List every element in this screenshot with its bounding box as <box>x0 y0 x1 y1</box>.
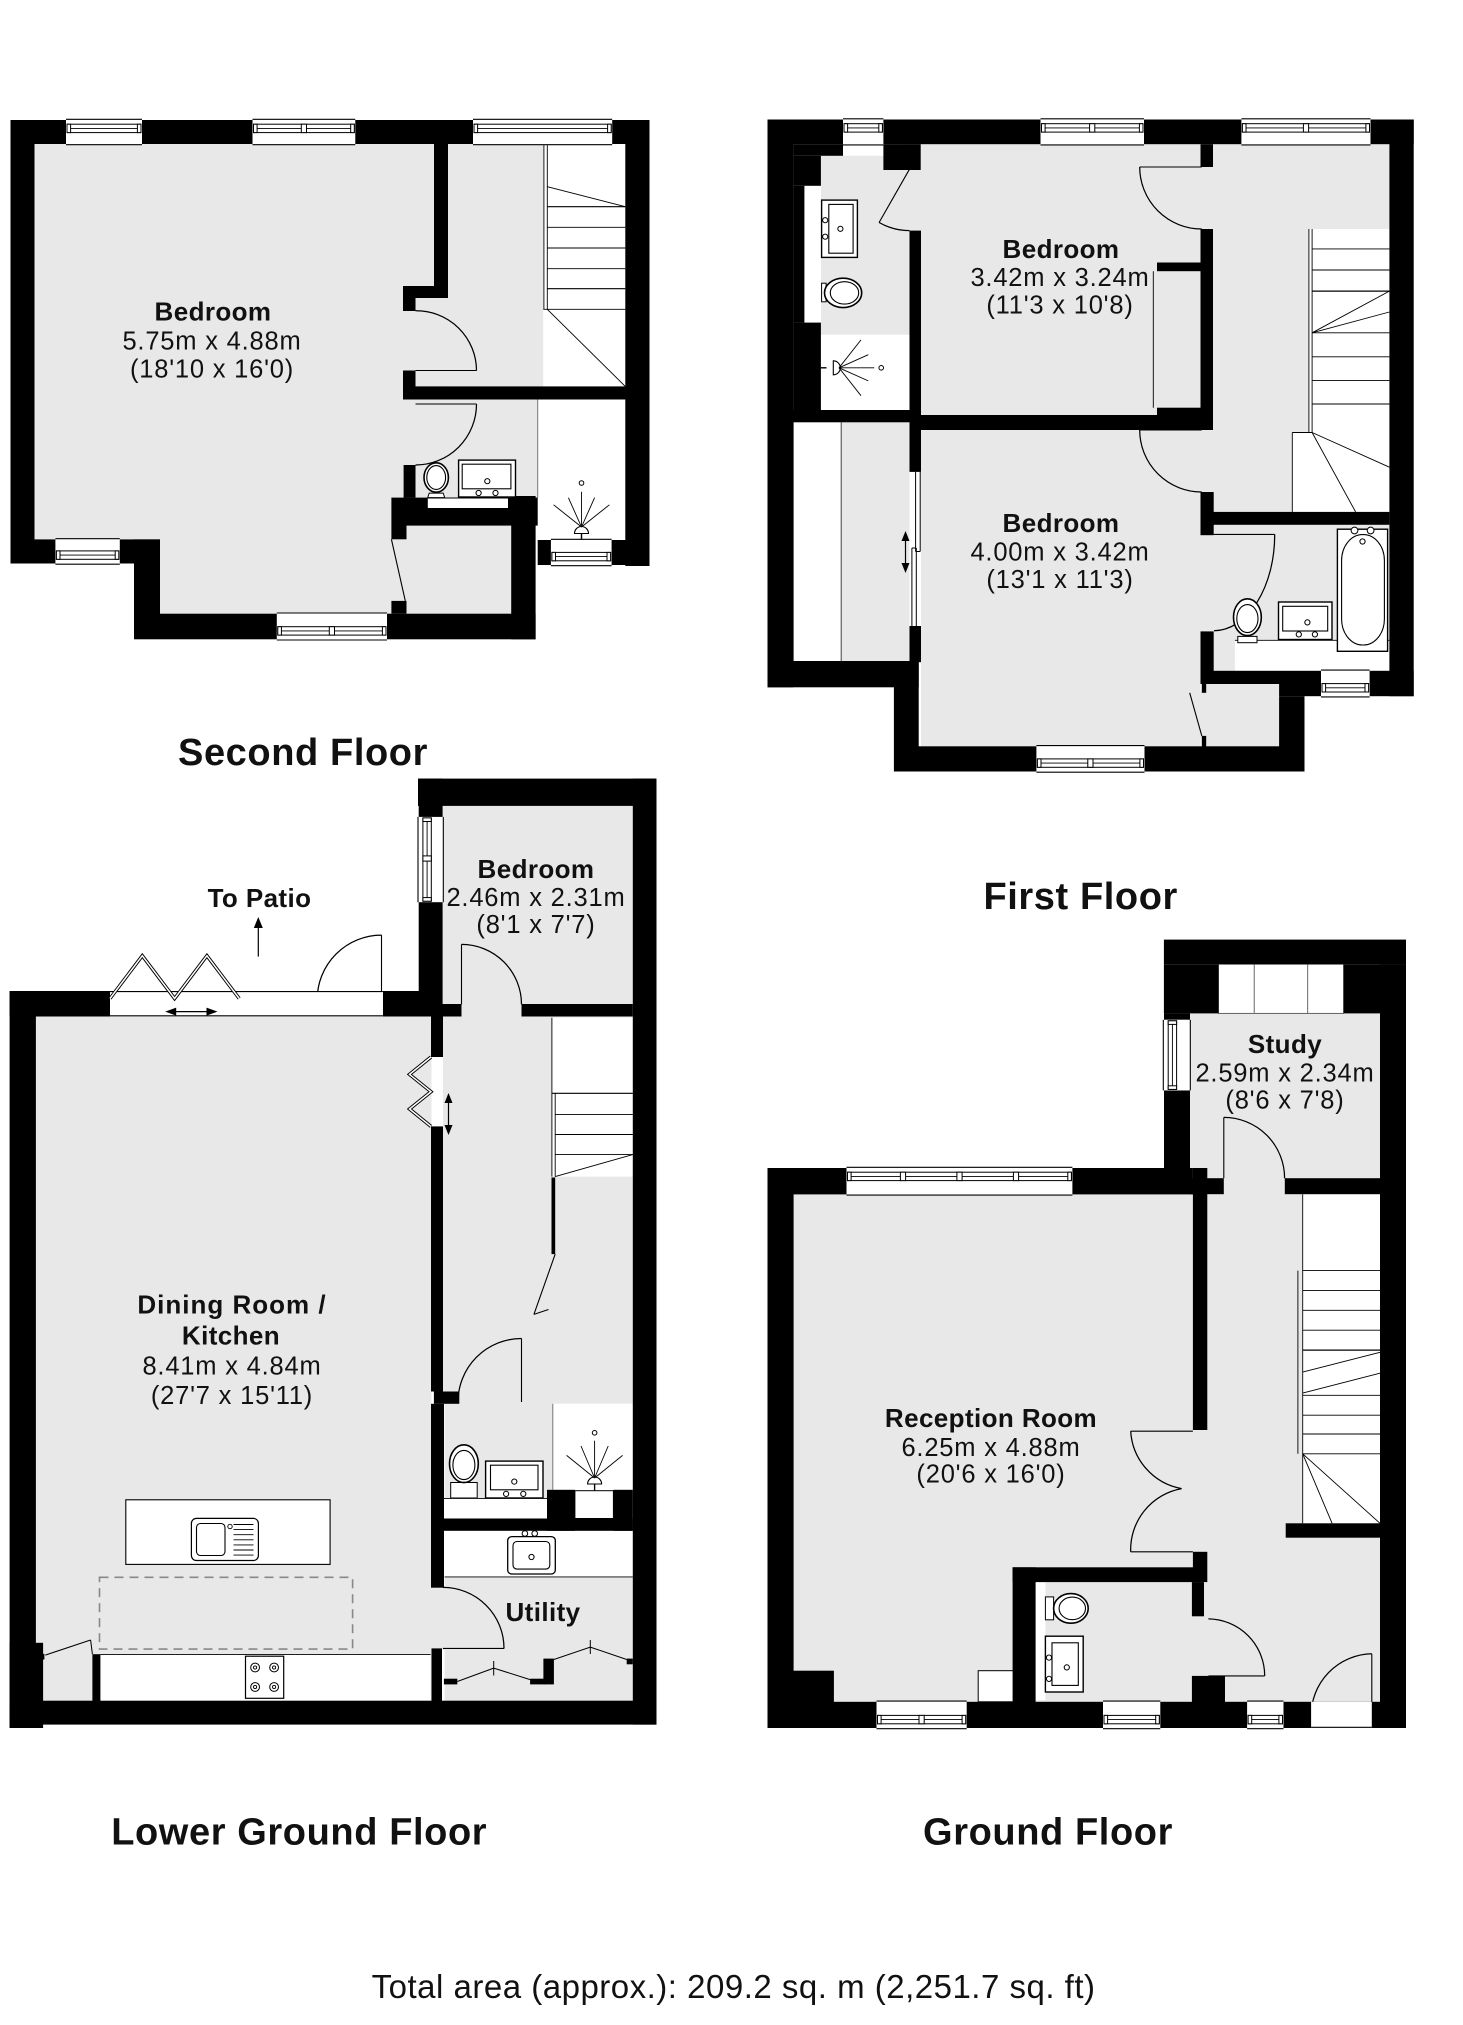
svg-text:Lower Ground Floor: Lower Ground Floor <box>111 1812 487 1854</box>
svg-text:4.00m x 3.42m: 4.00m x 3.42m <box>970 539 1149 567</box>
svg-text:Bedroom: Bedroom <box>1003 508 1120 538</box>
svg-text:First Floor: First Floor <box>983 876 1178 918</box>
svg-text:Reception Room: Reception Room <box>885 1403 1097 1433</box>
svg-text:Bedroom: Bedroom <box>478 854 595 884</box>
svg-text:(20'6 x 16'0): (20'6 x 16'0) <box>916 1461 1065 1489</box>
svg-text:2.46m x 2.31m: 2.46m x 2.31m <box>446 884 625 912</box>
svg-text:3.42m x 3.24m: 3.42m x 3.24m <box>970 264 1149 292</box>
svg-text:(27'7 x 15'11): (27'7 x 15'11) <box>151 1382 313 1410</box>
svg-text:2.59m x 2.34m: 2.59m x 2.34m <box>1195 1060 1374 1088</box>
svg-text:Bedroom: Bedroom <box>1003 234 1120 264</box>
svg-text:Study: Study <box>1248 1029 1322 1059</box>
svg-text:(13'1 x 11'3): (13'1 x 11'3) <box>986 566 1133 594</box>
svg-text:6.25m x 4.88m: 6.25m x 4.88m <box>901 1434 1080 1462</box>
svg-text:To Patio: To Patio <box>208 883 312 913</box>
svg-text:Ground Floor: Ground Floor <box>923 1812 1173 1854</box>
svg-text:5.75m x 4.88m: 5.75m x 4.88m <box>122 328 301 356</box>
svg-text:8.41m x 4.84m: 8.41m x 4.84m <box>142 1353 321 1381</box>
svg-text:Kitchen: Kitchen <box>182 1321 280 1351</box>
svg-text:Dining Room /: Dining Room / <box>137 1290 326 1320</box>
svg-text:(18'10 x 16'0): (18'10 x 16'0) <box>130 356 294 384</box>
svg-text:(8'1 x 7'7): (8'1 x 7'7) <box>476 911 595 939</box>
svg-text:Second Floor: Second Floor <box>178 732 428 774</box>
svg-text:Utility: Utility <box>505 1597 580 1627</box>
svg-text:Bedroom: Bedroom <box>155 297 272 327</box>
svg-text:(11'3 x 10'8): (11'3 x 10'8) <box>986 292 1133 320</box>
svg-text:(8'6 x 7'8): (8'6 x 7'8) <box>1225 1087 1344 1115</box>
svg-text:Total area (approx.): 209.2 sq: Total area (approx.): 209.2 sq. m (2,251… <box>372 1968 1096 2005</box>
